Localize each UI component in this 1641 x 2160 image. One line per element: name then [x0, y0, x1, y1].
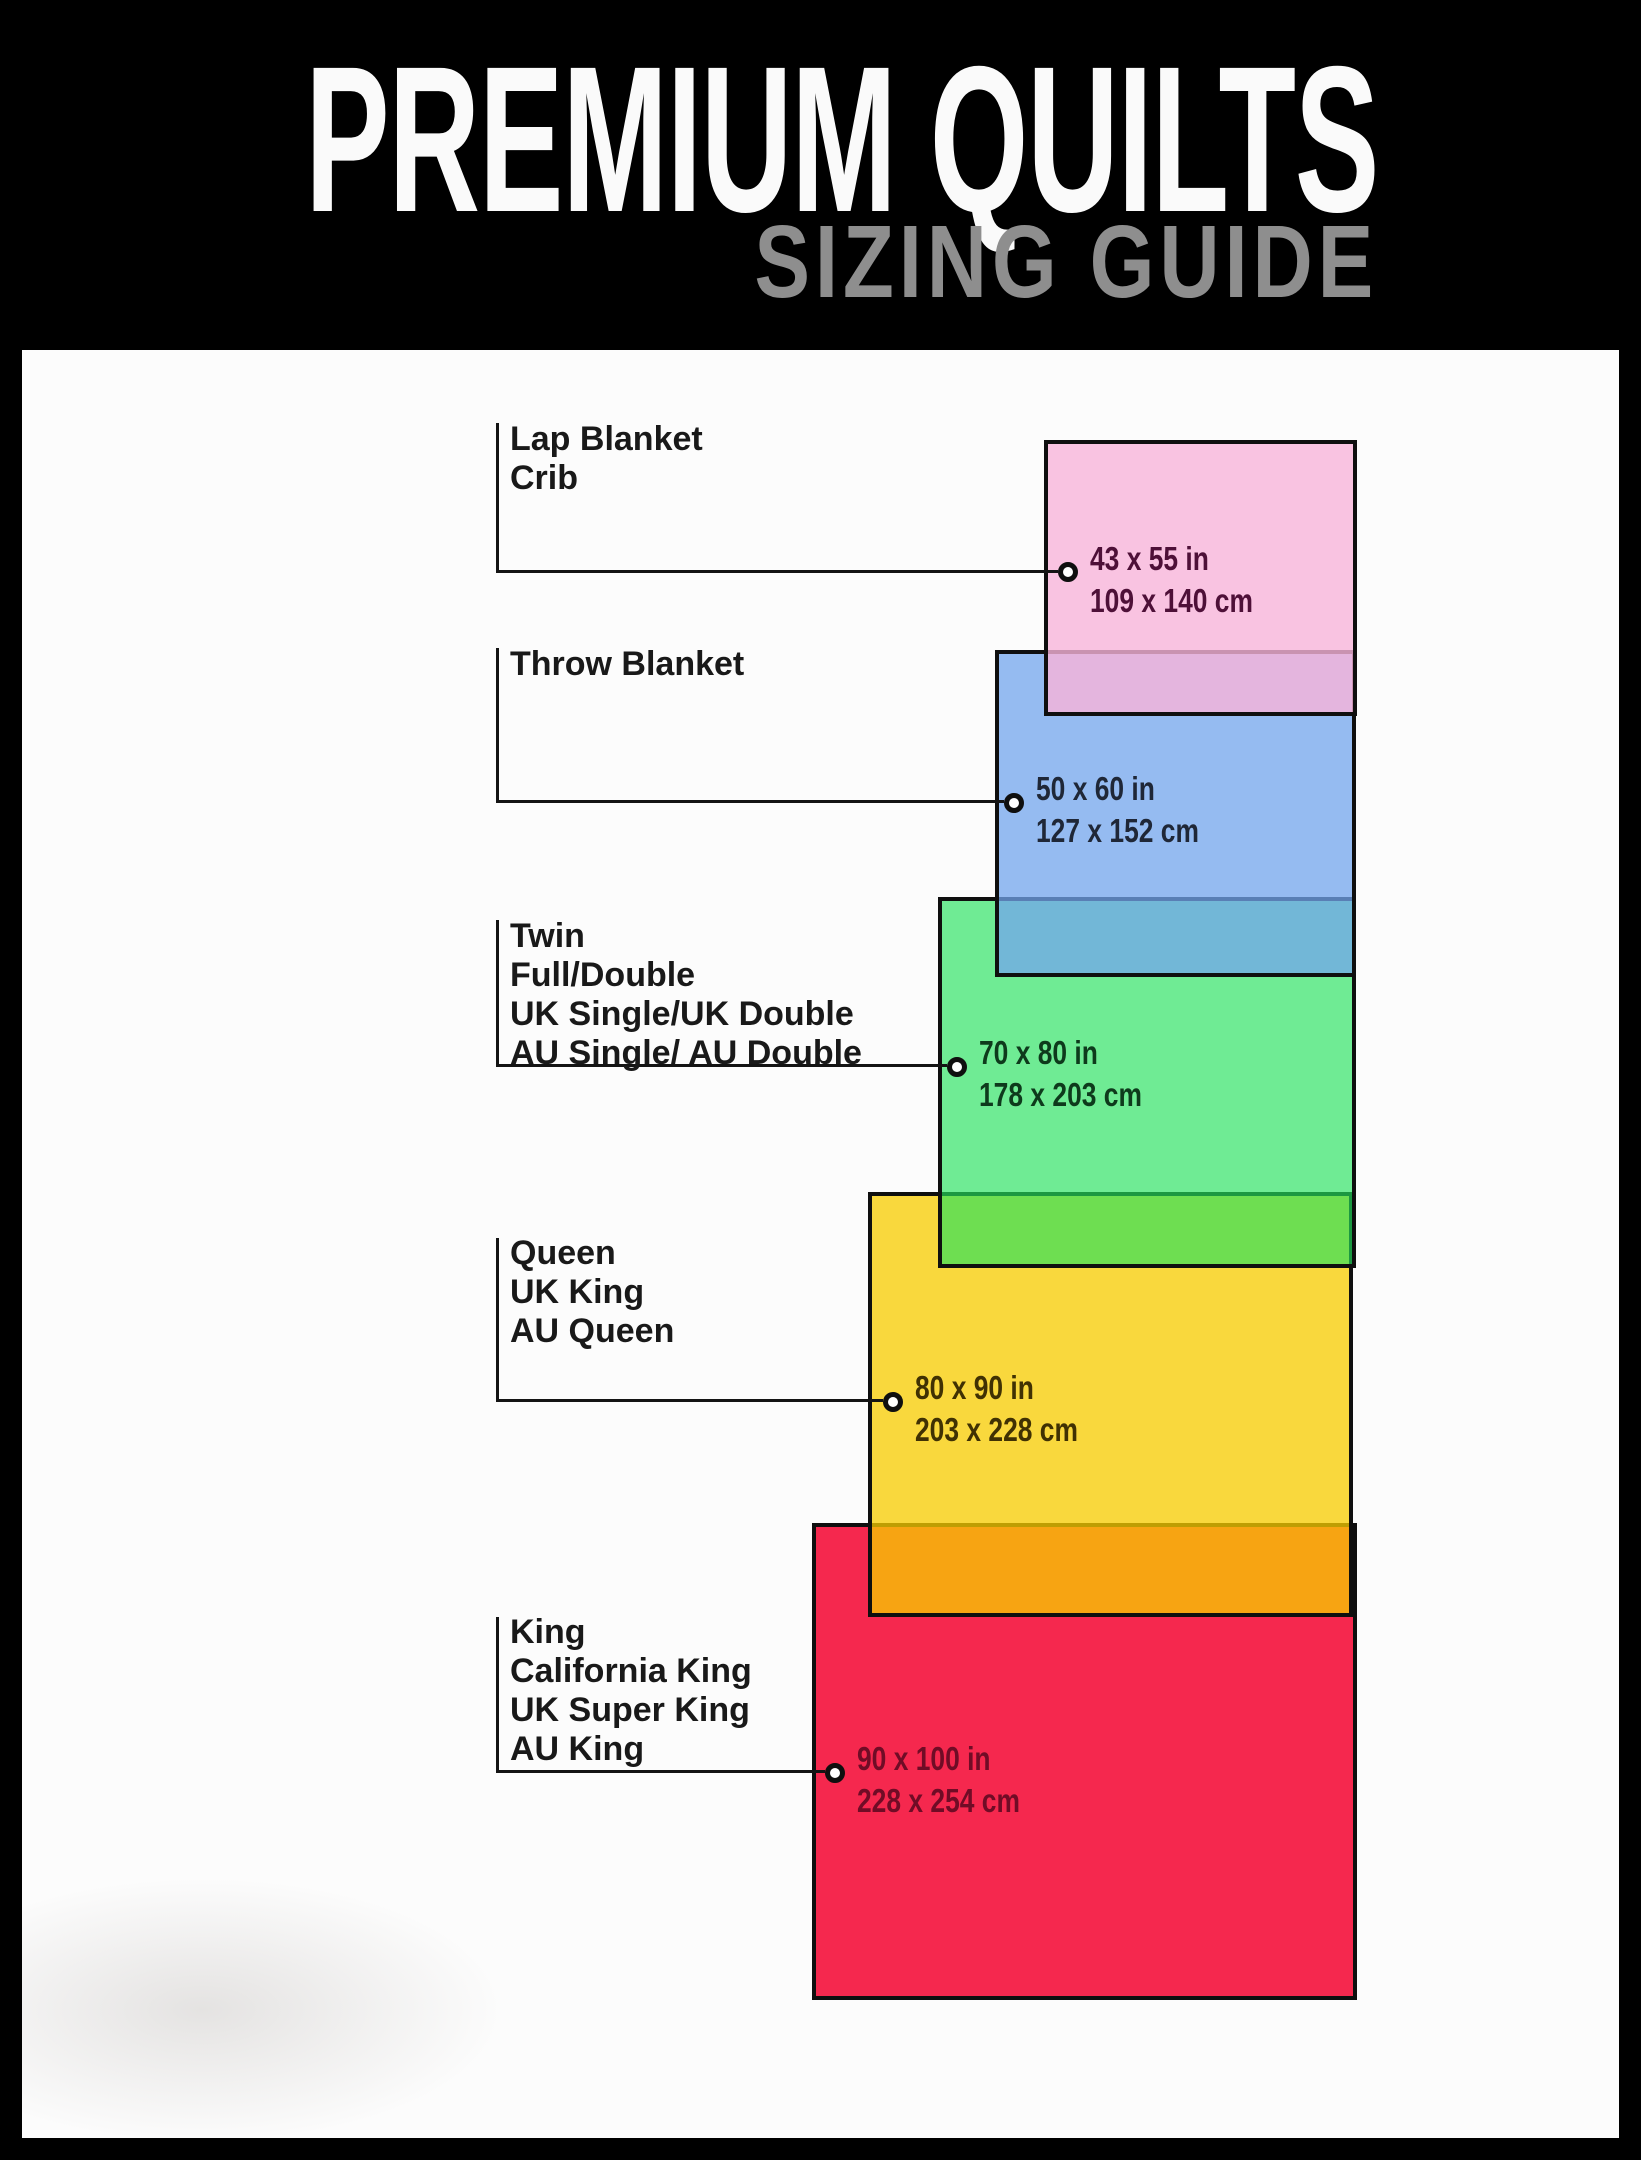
circle-marker-icon-king — [825, 1763, 845, 1783]
connector-tick-twin — [496, 920, 499, 1067]
dimensions-cm: 228 x 254 cm — [857, 1780, 1020, 1822]
size-dimensions-lap-crib: 43 x 55 in 109 x 140 cm — [1090, 538, 1253, 622]
dimensions-cm: 127 x 152 cm — [1036, 810, 1199, 852]
dimensions-inches: 70 x 80 in — [979, 1032, 1142, 1074]
circle-marker-icon-twin — [947, 1057, 967, 1077]
dimensions-inches: 80 x 90 in — [915, 1367, 1078, 1409]
size-label-throw: Throw Blanket — [510, 645, 744, 684]
connector-tick-queen — [496, 1238, 499, 1402]
dimensions-inches: 90 x 100 in — [857, 1738, 1020, 1780]
connector-line-queen — [496, 1399, 883, 1402]
page-subtitle: SIZING GUIDE — [754, 210, 1378, 313]
infographic-page: PREMIUM QUILTS SIZING GUIDE Lap Blanket … — [0, 0, 1641, 2160]
dimensions-cm: 109 x 140 cm — [1090, 580, 1253, 622]
size-label-queen: Queen UK King AU Queen — [510, 1234, 674, 1351]
header: PREMIUM QUILTS SIZING GUIDE — [0, 0, 1641, 350]
connector-line-king — [496, 1770, 825, 1773]
connector-tick-king — [496, 1617, 499, 1773]
connector-line-throw — [496, 800, 1004, 803]
dimensions-cm: 178 x 203 cm — [979, 1074, 1142, 1116]
size-dimensions-queen: 80 x 90 in 203 x 228 cm — [915, 1367, 1078, 1451]
connector-line-lap-crib — [496, 570, 1058, 573]
circle-marker-icon-lap-crib — [1058, 562, 1078, 582]
dimensions-cm: 203 x 228 cm — [915, 1409, 1078, 1451]
circle-marker-icon-throw — [1004, 793, 1024, 813]
size-label-twin: Twin Full/Double UK Single/UK Double AU … — [510, 917, 862, 1073]
circle-marker-icon-queen — [883, 1392, 903, 1412]
size-dimensions-throw: 50 x 60 in 127 x 152 cm — [1036, 768, 1199, 852]
dimensions-inches: 43 x 55 in — [1090, 538, 1253, 580]
size-label-king: King California King UK Super King AU Ki… — [510, 1613, 752, 1769]
size-dimensions-twin: 70 x 80 in 178 x 203 cm — [979, 1032, 1142, 1116]
diagram-panel: Lap Blanket Crib Throw Blanket Twin Full… — [22, 350, 1619, 2138]
dimensions-inches: 50 x 60 in — [1036, 768, 1199, 810]
size-label-lap-crib: Lap Blanket Crib — [510, 420, 703, 498]
connector-tick-throw — [496, 648, 499, 803]
size-dimensions-king: 90 x 100 in 228 x 254 cm — [857, 1738, 1020, 1822]
connector-tick-lap-crib — [496, 423, 499, 573]
